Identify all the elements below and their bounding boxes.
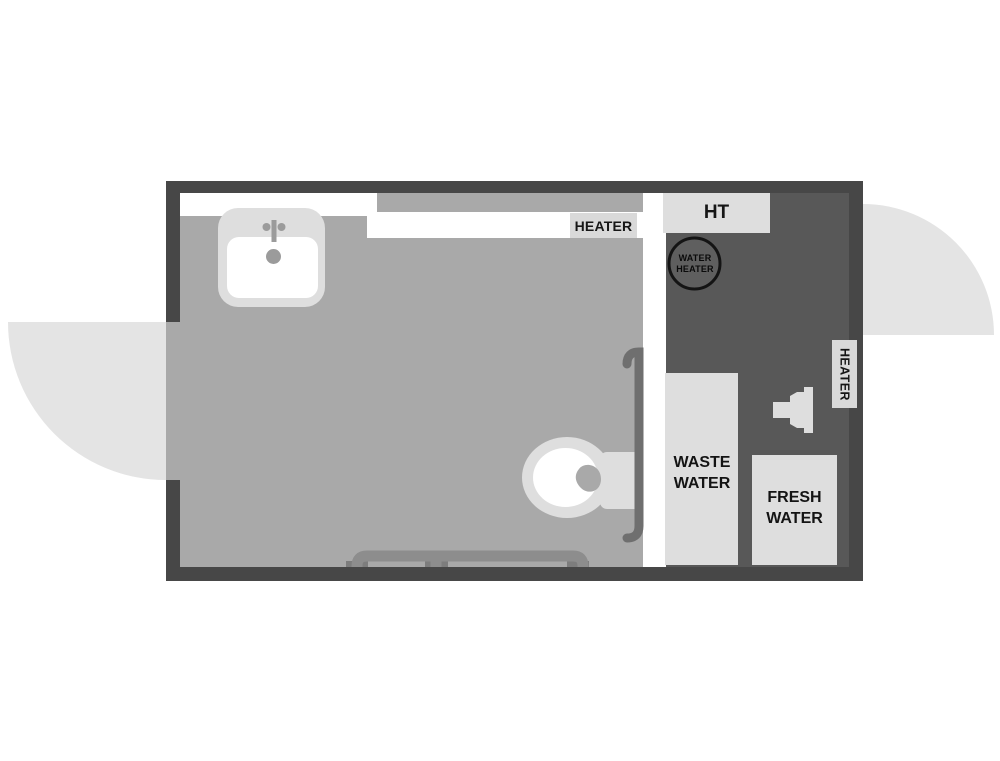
bottom-wall [166, 567, 863, 581]
side-heater-label: HEATER [832, 340, 857, 408]
fresh-water-label-line2: WATER [766, 510, 823, 527]
left-door-swing [8, 322, 166, 480]
waste-water-label: WASTE WATER [666, 451, 738, 495]
water-heater-label-line2: HEATER [676, 264, 714, 274]
fresh-water-label-line1: FRESH [767, 489, 821, 506]
water-heater-label: WATER HEATER [668, 250, 722, 277]
counter-shelf-inset [377, 193, 643, 212]
heater-label: HEATER [570, 213, 637, 238]
left-door-opening [166, 322, 180, 480]
sink-drain-icon [266, 249, 281, 264]
partition-wall [643, 193, 666, 567]
waste-water-label-line2: WATER [674, 475, 731, 492]
faucet-handle-icon [263, 223, 271, 231]
ht-cabinet-label: HT [663, 193, 770, 233]
waste-water-label-line1: WASTE [674, 454, 731, 471]
water-heater-label-line1: WATER [679, 253, 712, 263]
faucet-spout-icon [272, 220, 277, 242]
faucet-handle-icon [278, 223, 286, 231]
fresh-water-label: FRESH WATER [752, 486, 837, 530]
right-door-swing [863, 204, 994, 335]
floor-plan: HEATER HT WATER HEATER WASTE WATER FRESH… [0, 0, 1000, 761]
sink-basin [227, 237, 318, 298]
